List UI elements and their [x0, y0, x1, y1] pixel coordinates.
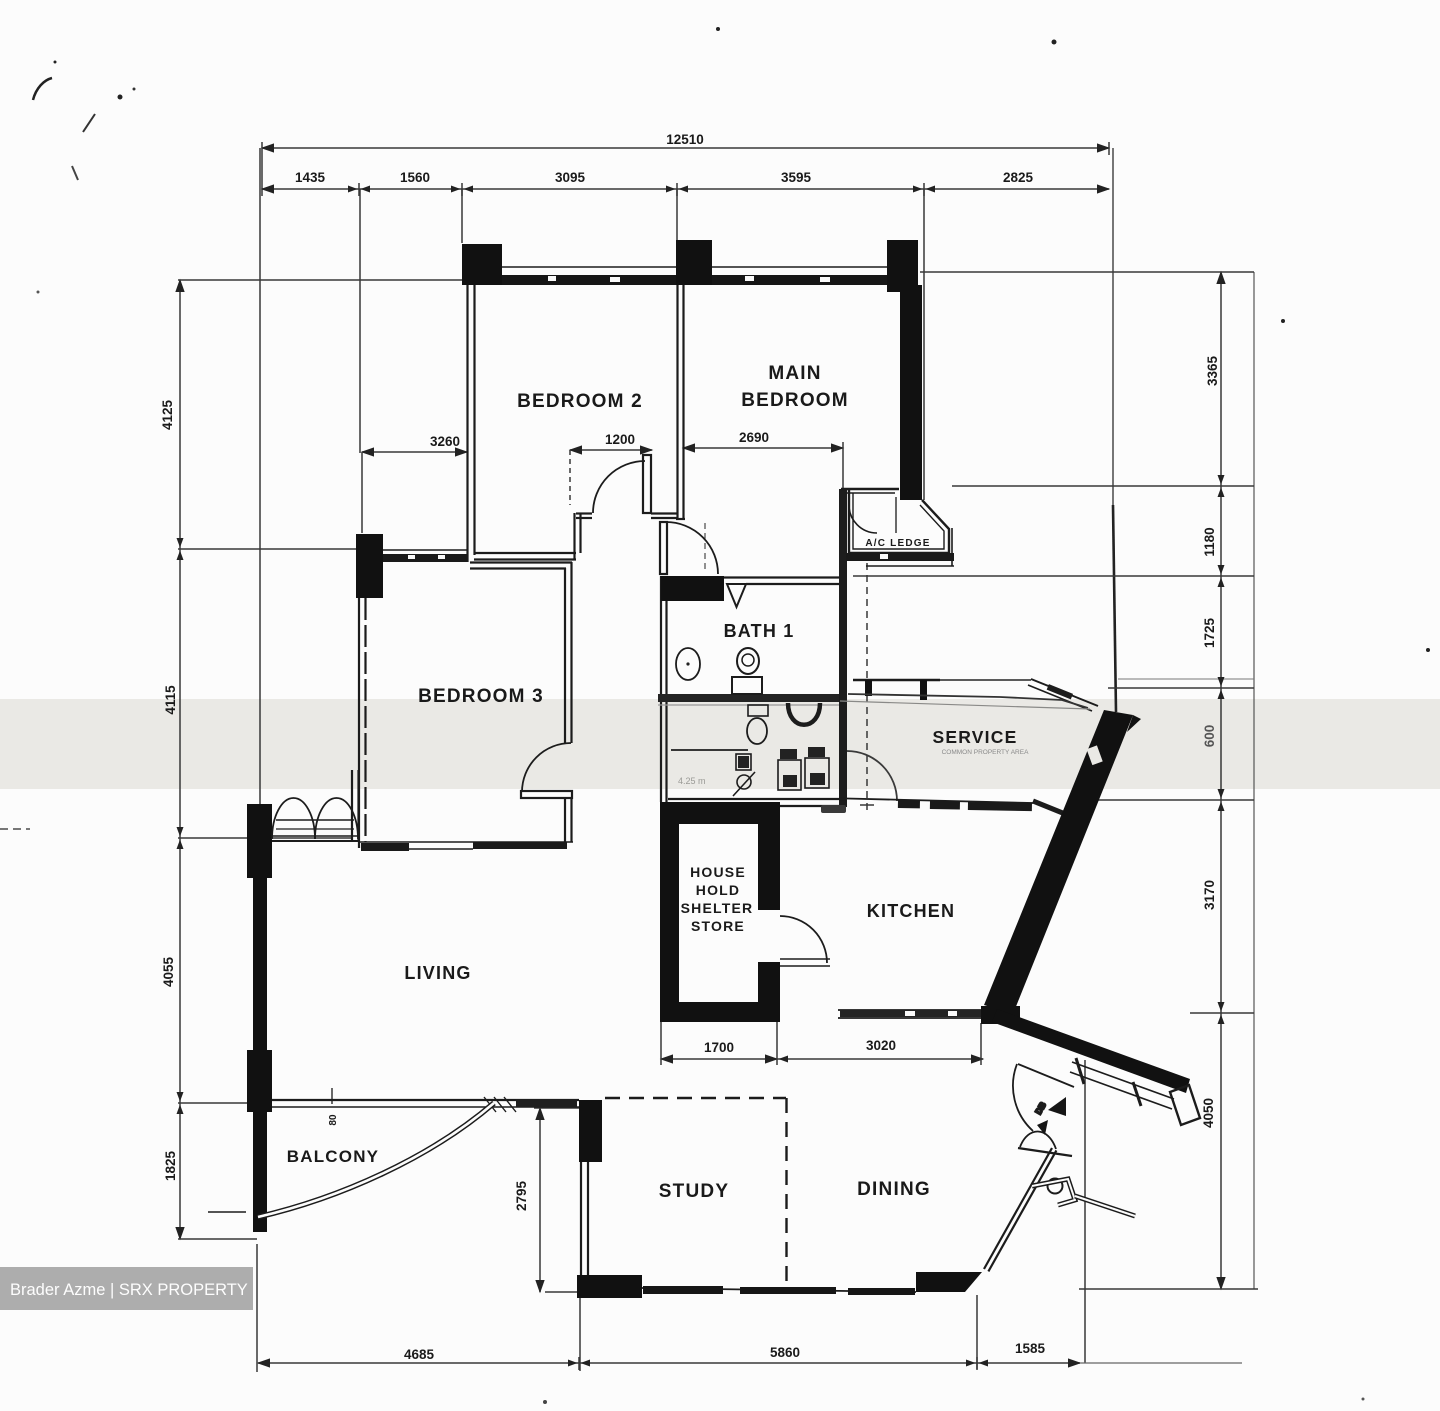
svg-text:DINING: DINING [857, 1179, 931, 1200]
svg-text:3595: 3595 [781, 170, 812, 185]
svg-text:4055: 4055 [161, 956, 176, 987]
svg-text:A/C LEDGE: A/C LEDGE [865, 538, 930, 549]
svg-text:STUDY: STUDY [659, 1181, 729, 1202]
svg-text:HOUSE: HOUSE [690, 864, 746, 880]
svg-text:600: 600 [1202, 725, 1217, 748]
svg-text:BATH 1: BATH 1 [724, 621, 795, 641]
svg-text:3365: 3365 [1205, 355, 1220, 386]
svg-text:3170: 3170 [1202, 880, 1217, 910]
svg-text:4115: 4115 [163, 685, 178, 715]
svg-text:80: 80 [328, 1114, 339, 1126]
svg-text:LIVING: LIVING [404, 963, 471, 983]
svg-text:HOLD: HOLD [696, 882, 740, 898]
svg-text:1180: 1180 [1202, 527, 1217, 556]
svg-text:BEDROOM: BEDROOM [741, 390, 849, 411]
svg-text:2825: 2825 [1003, 170, 1034, 185]
svg-text:BALCONY: BALCONY [287, 1147, 379, 1166]
svg-text:Brader Azme | SRX PROPERTY: Brader Azme | SRX PROPERTY [10, 1281, 248, 1299]
svg-text:BEDROOM 2: BEDROOM 2 [517, 391, 643, 412]
svg-text:1200: 1200 [605, 432, 635, 447]
svg-text:4125: 4125 [160, 399, 175, 430]
svg-text:1560: 1560 [400, 170, 430, 185]
svg-text:2795: 2795 [514, 1180, 529, 1211]
svg-text:1700: 1700 [704, 1040, 734, 1055]
svg-text:SERVICE: SERVICE [933, 727, 1018, 747]
svg-text:12510: 12510 [666, 132, 704, 147]
svg-text:STORE: STORE [691, 918, 745, 934]
svg-text:2690: 2690 [739, 430, 769, 445]
svg-text:BEDROOM 3: BEDROOM 3 [418, 686, 544, 707]
svg-text:3260: 3260 [430, 434, 460, 449]
svg-text:4685: 4685 [404, 1347, 435, 1362]
svg-text:1825: 1825 [163, 1150, 178, 1181]
svg-text:COMMON PROPERTY AREA: COMMON PROPERTY AREA [942, 749, 1029, 756]
svg-text:1725: 1725 [1202, 617, 1217, 648]
svg-text:4050: 4050 [1201, 1098, 1216, 1128]
svg-text:4.25 m: 4.25 m [678, 776, 706, 786]
svg-text:3095: 3095 [555, 170, 586, 185]
svg-text:KITCHEN: KITCHEN [867, 901, 955, 921]
svg-text:5860: 5860 [770, 1345, 800, 1360]
svg-text:SHELTER: SHELTER [681, 900, 754, 916]
svg-text:MAIN: MAIN [768, 363, 821, 384]
svg-text:1435: 1435 [295, 170, 326, 185]
svg-text:1585: 1585 [1015, 1341, 1046, 1356]
svg-text:3020: 3020 [866, 1038, 896, 1053]
